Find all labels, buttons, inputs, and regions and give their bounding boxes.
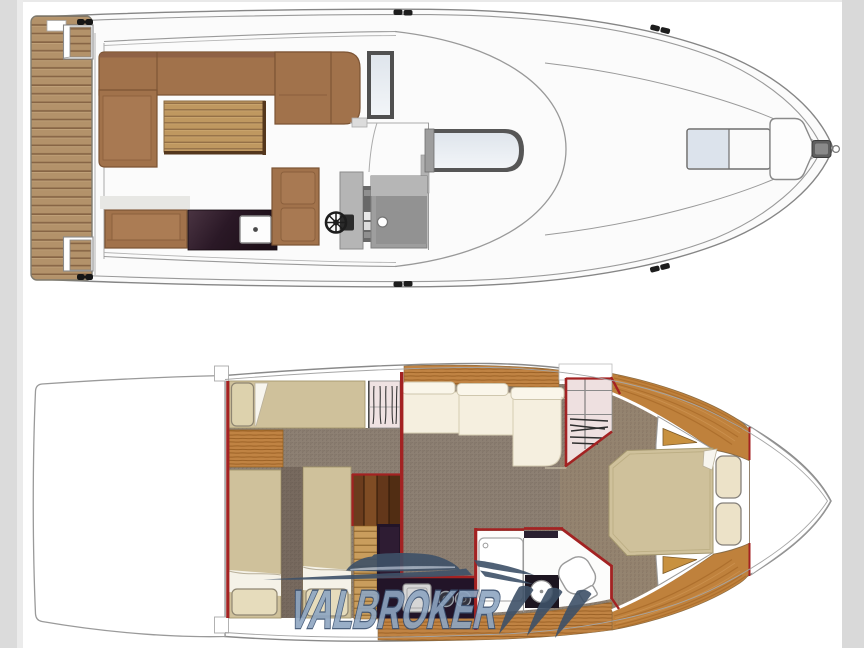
svg-text:VALBROKER: VALBROKER [284,579,506,640]
